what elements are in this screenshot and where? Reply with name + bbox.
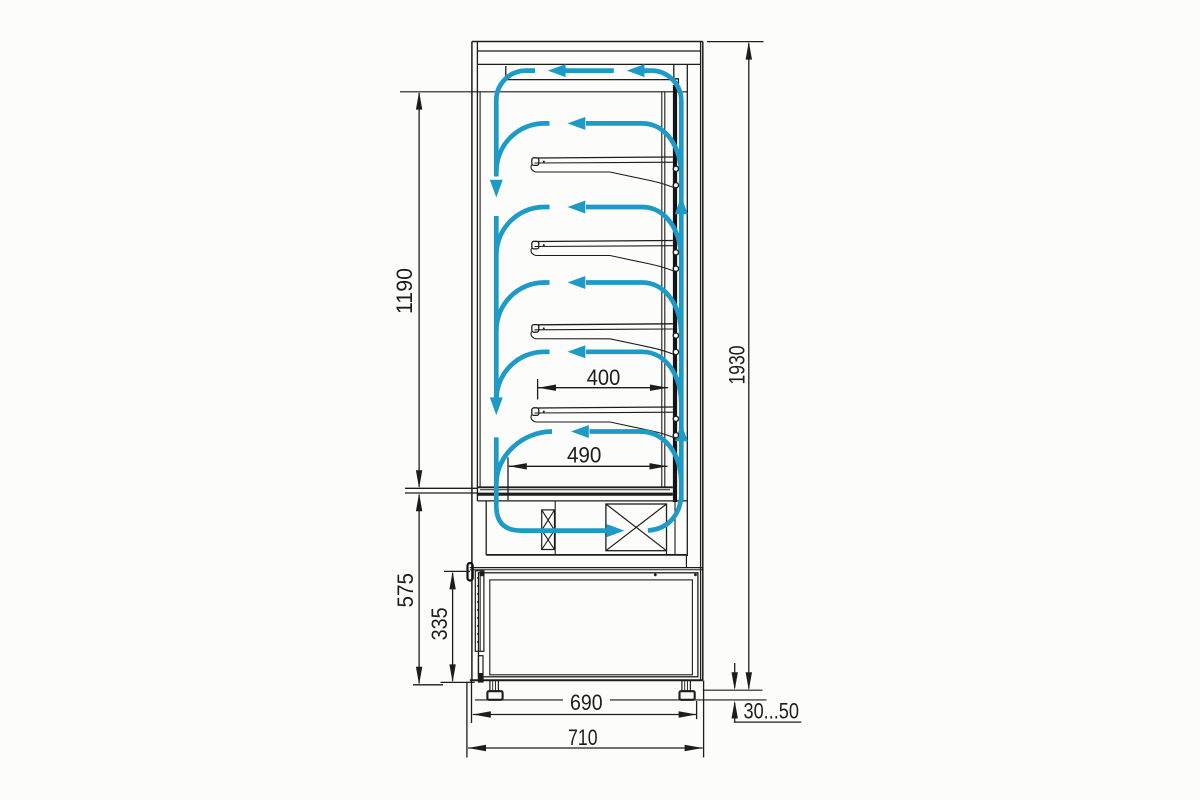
svg-text:1190: 1190 bbox=[392, 268, 417, 314]
svg-text:335: 335 bbox=[427, 607, 452, 640]
svg-text:710: 710 bbox=[568, 725, 598, 750]
svg-text:400: 400 bbox=[587, 365, 621, 390]
svg-text:30...50: 30...50 bbox=[744, 699, 800, 724]
svg-text:1930: 1930 bbox=[724, 346, 749, 385]
svg-text:690: 690 bbox=[570, 690, 603, 715]
svg-text:575: 575 bbox=[393, 573, 418, 608]
svg-text:490: 490 bbox=[567, 442, 602, 467]
